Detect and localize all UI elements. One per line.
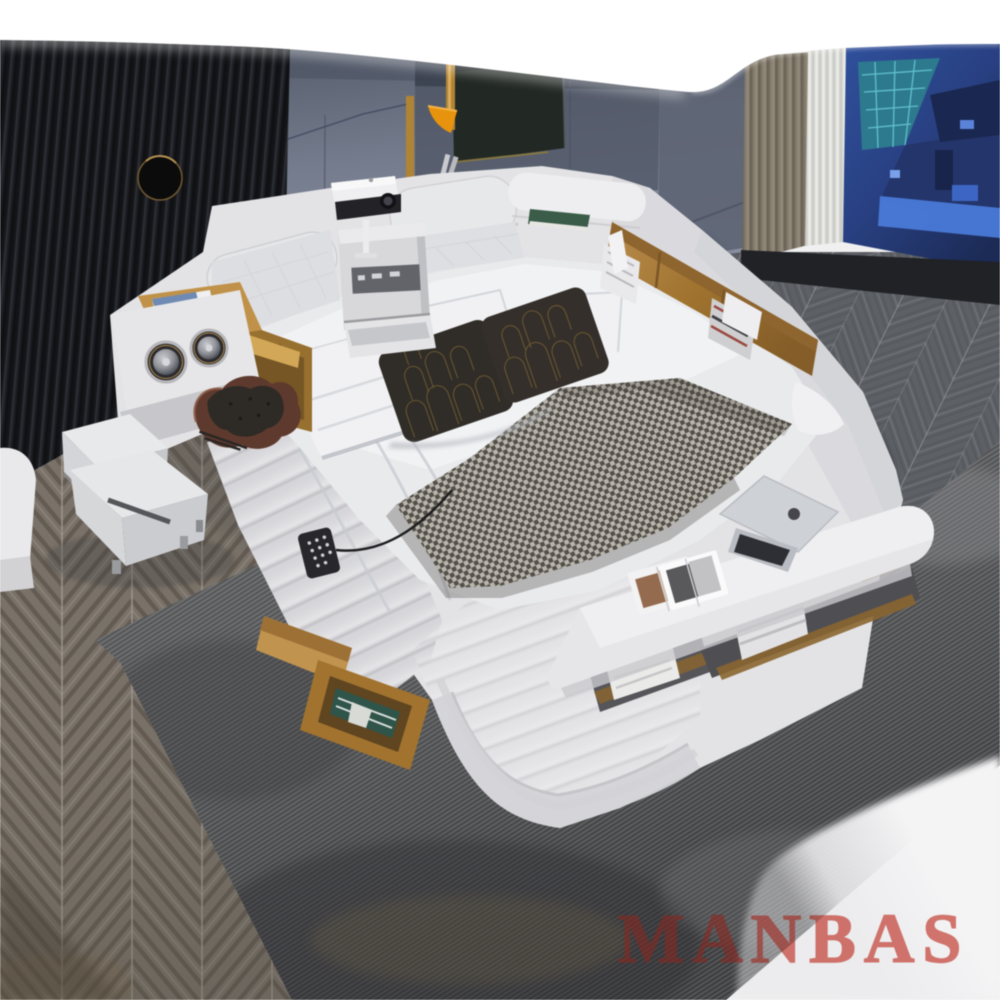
- svg-text:MANBAS: MANBAS: [618, 901, 969, 978]
